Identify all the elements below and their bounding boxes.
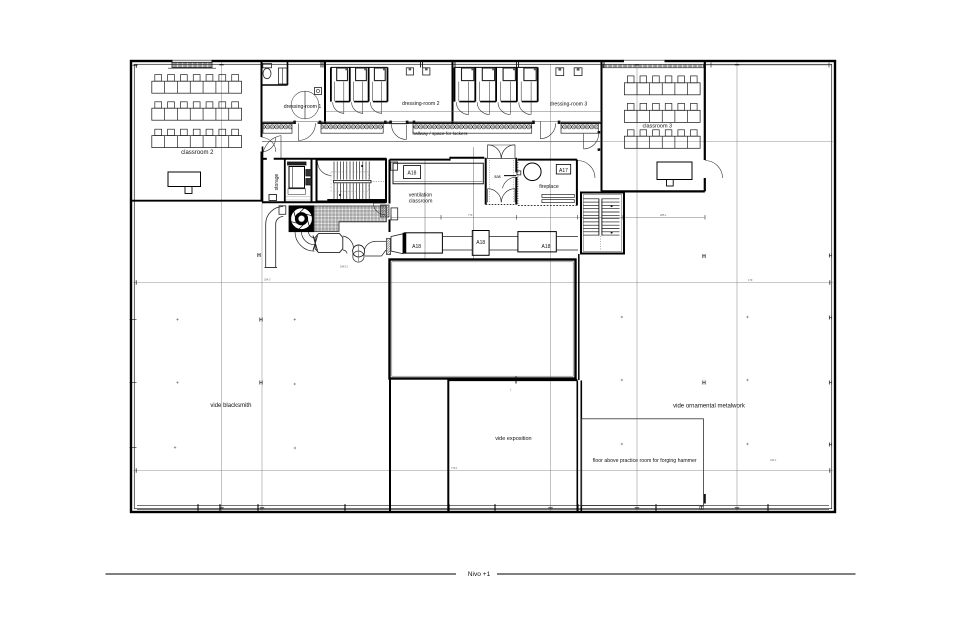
svg-text:classroom 3: classroom 3 (642, 124, 672, 130)
svg-text:H: H (829, 254, 833, 260)
svg-text:dressing-room 2: dressing-room 2 (402, 101, 440, 107)
svg-text:A17: A17 (559, 168, 568, 174)
svg-text:H: H (829, 381, 833, 387)
svg-text:classroom: classroom (409, 198, 433, 204)
svg-text:floor above practice room for: floor above practice room for forging ha… (593, 458, 697, 464)
svg-text:H: H (829, 443, 833, 449)
svg-text:779: 779 (468, 213, 473, 217)
svg-text:vide blacksmith: vide blacksmith (210, 403, 251, 409)
svg-text:184.3: 184.3 (264, 278, 271, 282)
svg-text:H: H (829, 316, 833, 322)
svg-text:vide exposition: vide exposition (495, 436, 531, 442)
svg-text:classroom 2: classroom 2 (181, 150, 214, 156)
svg-text:dressing-room 1: dressing-room 1 (284, 104, 322, 110)
svg-text:A18: A18 (542, 244, 551, 250)
svg-text:H: H (259, 381, 263, 387)
svg-text:dressing-room 3: dressing-room 3 (550, 102, 588, 108)
svg-text:A18: A18 (476, 240, 485, 246)
svg-text:A18: A18 (408, 171, 417, 177)
svg-text:441.1: 441.1 (770, 458, 777, 462)
svg-text:sas: sas (494, 174, 501, 179)
svg-text:1843.2: 1843.2 (340, 264, 348, 268)
svg-text:H: H (702, 381, 706, 387)
svg-text:H: H (257, 253, 261, 259)
svg-text:storage: storage (274, 173, 280, 190)
svg-text:H: H (702, 254, 706, 260)
svg-text:779.1: 779.1 (451, 466, 458, 470)
svg-text:Nivo +1: Nivo +1 (468, 571, 491, 578)
svg-text:fireplace: fireplace (539, 184, 559, 190)
svg-text:A18: A18 (412, 244, 421, 250)
svg-text:H: H (259, 318, 263, 324)
svg-text:286.1: 286.1 (660, 213, 667, 217)
svg-text:179: 179 (748, 278, 753, 282)
svg-text:vide ornamental metalwork: vide ornamental metalwork (673, 404, 746, 410)
